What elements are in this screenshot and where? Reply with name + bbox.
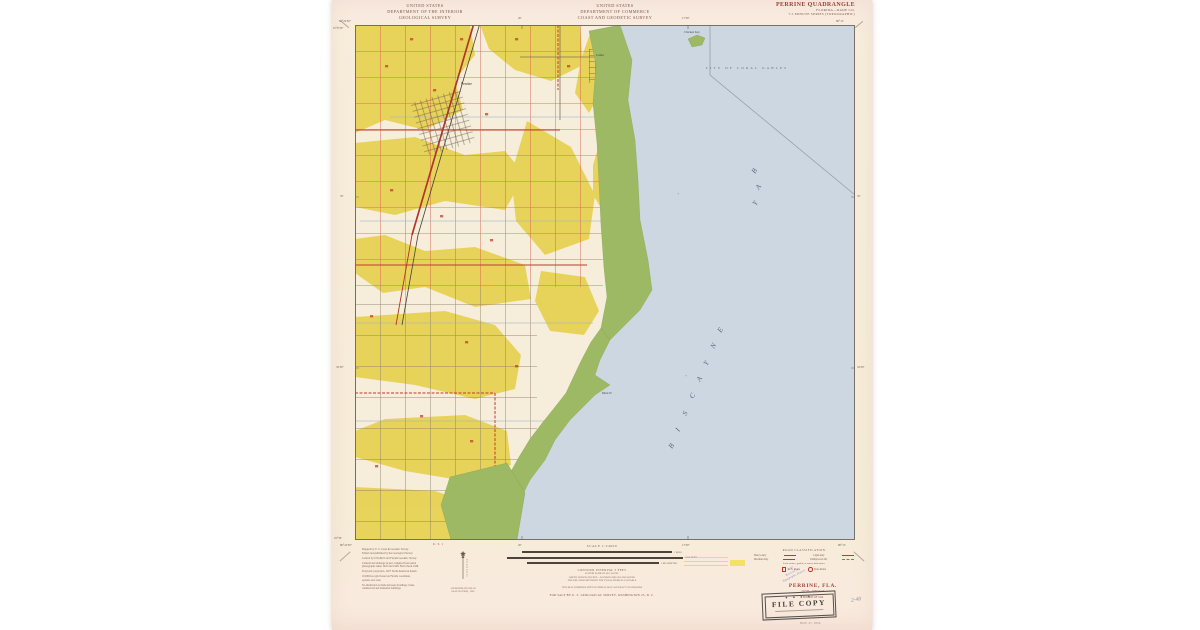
scale-bar-km-label: 1 KILOMETER [661,562,677,565]
declination-diagram: APPROXIMATE MEAN DECLINATION, 1949 [446,551,480,594]
faint-annotation-lines [684,557,728,569]
coral-gables-label: CITY OF CORAL GABLES [706,66,788,70]
page-root: UNITED STATES DEPARTMENT OF THE INTERIOR… [0,0,1200,630]
unimproved-road-sample [842,559,854,560]
tick-label-left-2: 32'30" [336,365,344,369]
declination-arrow-icon [446,551,480,581]
header-usgs: UNITED STATES DEPARTMENT OF THE INTERIOR… [365,3,485,20]
corner-mark [854,551,865,561]
coord-left-lat-top: 25°37'30" [333,27,343,30]
tick-label-top-1: 20' [518,16,522,20]
corner-mark [340,551,351,561]
scale-bar-miles: 1 MILE [492,551,712,554]
pencil-note: 2-48 [851,596,862,603]
road-classification-title: ROAD CLASSIFICATION [754,548,854,552]
chicken-key-label: Chicken Key [684,30,700,34]
tick-label-right-2: 32'30" [857,365,865,369]
tick-label-top-2: 17'30" [682,16,690,20]
file-copy-stamp: ★ ★ ★ ★ FILE COPY [761,590,836,620]
file-copy-stamp-border [764,593,834,618]
scale-label: SCALE 1:24000 [492,544,712,548]
corner-mark [855,21,863,28]
contour-relation: THE RELATION BETWEEN THE TWO DATUMS IS V… [492,579,712,583]
tick-label-left-1: 35' [340,194,344,198]
quad-sub2: 7.5 MINUTE SERIES (TOPOGRAPHIC) [712,12,855,16]
tick-label-right-1: 35' [857,194,861,198]
header-usgs-line3: GEOLOGICAL SURVEY [365,15,485,21]
accuracy-note: THIS MAP COMPLIES WITH NATIONAL MAP ACCU… [492,586,712,590]
yellow-highlight-mark [730,560,745,566]
quad-title-block: PERRINE QUADRANGLE FLORIDA—DADE CO. 7.5 … [712,2,855,16]
sheet-name: PERRINE, FLA. [770,583,856,589]
section-grid-red [355,25,603,287]
scale-bar-feet: 7000 FEET [492,556,712,559]
heavy-road-sample [784,555,796,556]
sale-note: FOR SALE BY U. S. GEOLOGICAL SURVEY, WAS… [492,593,712,597]
scale-bar-miles-label: 1 MILE [674,551,682,554]
scale-bar-km: 1 KILOMETER [492,562,712,565]
map-svg: Perrine Cutler Chicken Key Black Pt CITY… [355,25,855,540]
road-class-medium: Medium-duty [754,558,768,561]
black-pt-label: Black Pt [602,392,612,395]
road-class-heavy: Heavy-duty [754,554,766,557]
scale-block: SCALE 1:24000 1 MILE 7000 FEET 1 KILOMET… [492,544,712,597]
us1-route-label: U. S. 1 [433,542,443,546]
road-class-light: Light-duty [813,554,824,557]
perrine-label: Perrine [461,82,472,86]
contour-block: CONTOUR INTERVAL 5 FEET DATUM IS MEAN SE… [492,568,712,597]
map-sheet: UNITED STATES DEPARTMENT OF THE INTERIOR… [332,0,872,630]
cutler-label: Cutler [596,53,604,57]
coord-top-right-lon: 80°15' [836,19,844,23]
state-route-label: State Route [814,568,826,571]
medium-road-sample [783,559,795,560]
date-stamp: NOV 27 1950 [800,621,821,625]
header-uscgs: UNITED STATES DEPARTMENT OF COMMERCE COA… [555,3,675,20]
coord-bottom-left-lon: 80°22'30" [340,543,352,547]
map-area: Perrine Cutler Chicken Key Black Pt CITY… [355,25,855,540]
coord-bottom-right-lon: 80°15' [838,543,846,547]
header-uscgs-line3: COAST AND GEODETIC SURVEY [555,15,675,21]
light-road-sample [842,555,854,556]
coord-left-lat-bottom: 25°30' [334,536,342,540]
coord-top-left-lon: 80°22'30" [339,19,351,23]
declination-caption-2: DECLINATION, 1949 [446,590,480,593]
